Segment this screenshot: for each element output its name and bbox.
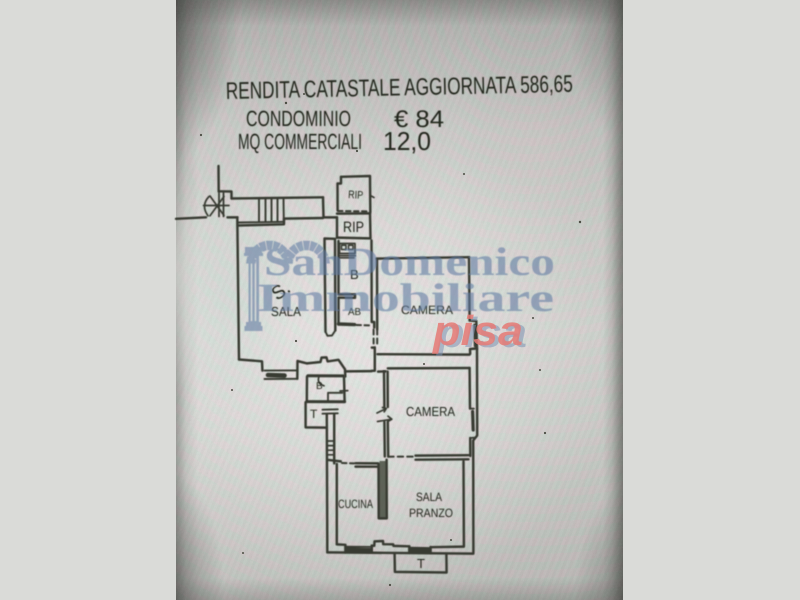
svg-text:T: T	[417, 556, 425, 571]
svg-text:T: T	[310, 407, 318, 421]
svg-text:12,0: 12,0	[383, 126, 431, 156]
svg-text:RIP: RIP	[343, 219, 364, 236]
svg-text:B: B	[316, 381, 323, 392]
svg-text:MQ COMMERCIALI: MQ COMMERCIALI	[238, 129, 362, 154]
svg-text:PRANZO: PRANZO	[409, 506, 453, 520]
svg-text:pisa: pisa	[432, 307, 523, 354]
svg-text:CAMERA: CAMERA	[406, 404, 455, 419]
svg-text:SALA: SALA	[416, 490, 442, 504]
svg-text:CONDOMINIO: CONDOMINIO	[246, 106, 351, 131]
svg-text:RIP: RIP	[348, 189, 364, 202]
svg-text:CUCINA: CUCINA	[338, 497, 373, 511]
